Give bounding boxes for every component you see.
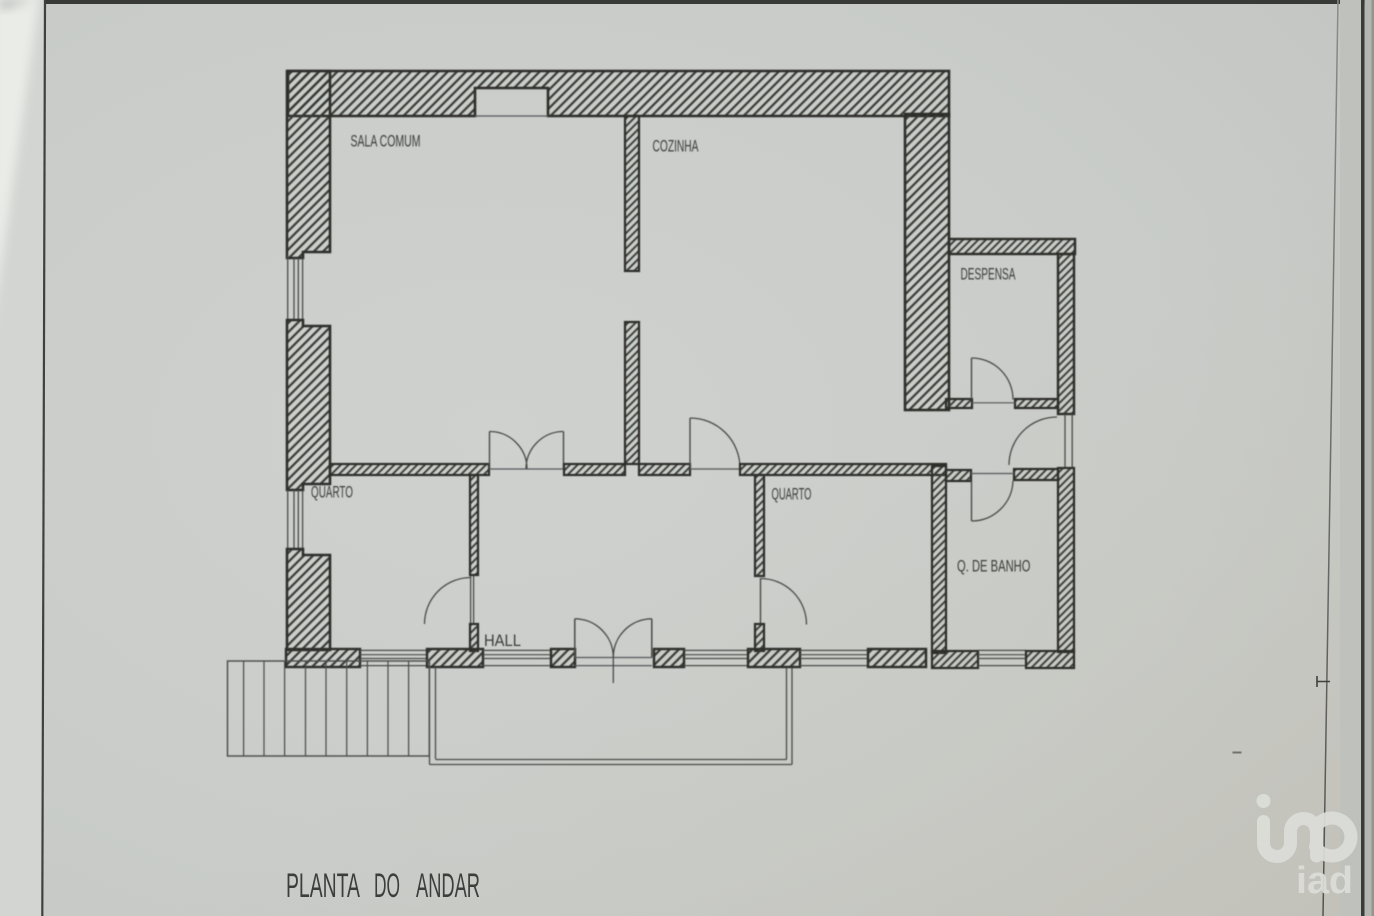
svg-text:COZINHA: COZINHA xyxy=(653,137,699,156)
svg-text:DESPENSA: DESPENSA xyxy=(961,265,1016,284)
svg-text:PLANTA: PLANTA xyxy=(286,867,360,905)
svg-text:Q. DE BANHO: Q. DE BANHO xyxy=(957,557,1031,576)
svg-text:SALA COMUM: SALA COMUM xyxy=(351,132,421,151)
svg-text:DO: DO xyxy=(374,867,400,905)
svg-text:QUARTO: QUARTO xyxy=(311,483,353,502)
svg-text:QUARTO: QUARTO xyxy=(772,485,812,504)
svg-text:iad: iad xyxy=(1296,860,1353,902)
svg-text:ANDAR: ANDAR xyxy=(416,867,480,905)
svg-text:HALL: HALL xyxy=(484,631,521,650)
